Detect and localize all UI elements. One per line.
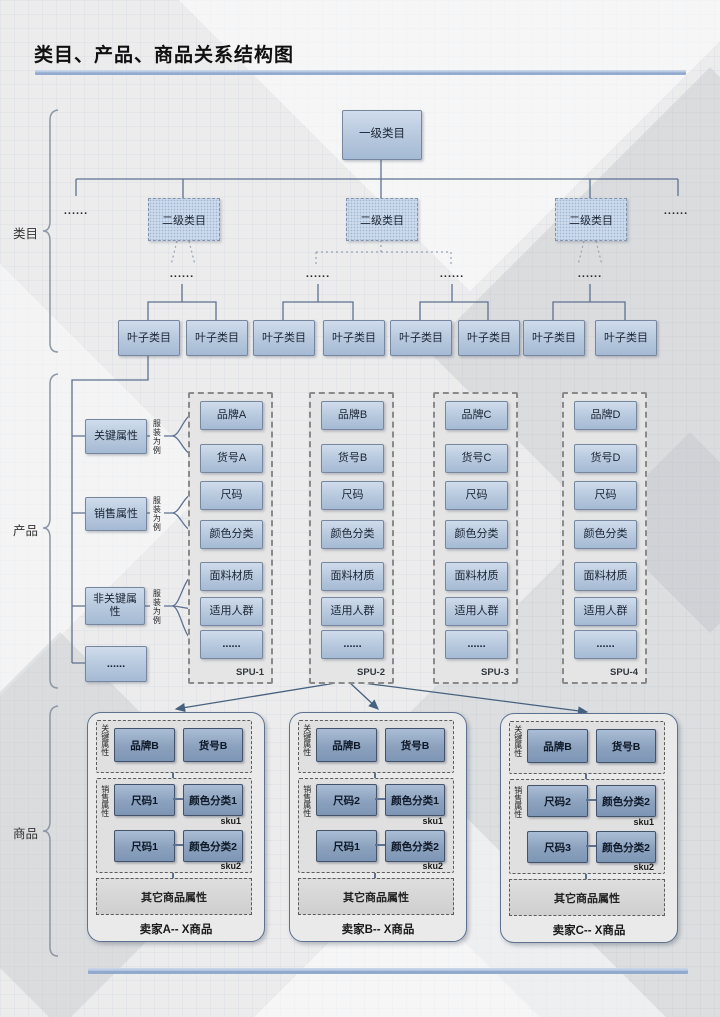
spu-attr-size: 尺码 bbox=[200, 481, 263, 510]
spu-attr-size: 尺码 bbox=[321, 481, 384, 510]
sku-tag: sku2 bbox=[398, 861, 443, 871]
spu-attr-audience: 适用人群 bbox=[574, 597, 637, 626]
sku-brand-box: 品牌B bbox=[316, 728, 377, 762]
node-leaf-category: 叶子类目 bbox=[118, 320, 180, 356]
node-level2-category: 二级类目 bbox=[346, 198, 418, 241]
spu-label: SPU-3 bbox=[481, 667, 509, 678]
node-sales-attributes: 销售属性 bbox=[85, 497, 147, 531]
node-leaf-category: 叶子类目 bbox=[595, 320, 657, 356]
sku-color-box: 颜色分类2 bbox=[596, 785, 656, 817]
other-attrs-box: 其它商品属性 bbox=[96, 878, 252, 915]
sku-size-box: 尺码3 bbox=[527, 831, 588, 863]
spu-label: SPU-1 bbox=[236, 667, 264, 678]
sku-size-box: 尺码1 bbox=[114, 830, 175, 862]
sku-color-box: 颜色分类2 bbox=[596, 831, 656, 863]
sku-size-box: 尺码1 bbox=[114, 784, 175, 816]
page-title: 类目、产品、商品关系结构图 bbox=[34, 40, 294, 67]
sku-itemno-box: 货号B bbox=[385, 728, 445, 762]
spu-attr-more: ...... bbox=[321, 630, 384, 659]
spu-attr-audience: 适用人群 bbox=[321, 597, 384, 626]
sku-pair-connector bbox=[586, 845, 596, 847]
sku-itemno-box: 货号B bbox=[183, 728, 243, 762]
sku-brand-box: 品牌B bbox=[114, 728, 175, 762]
spu-attr-brand: 品牌B bbox=[321, 401, 384, 430]
spu-attr-color: 颜色分类 bbox=[574, 520, 637, 549]
sku-size-box: 尺码2 bbox=[316, 784, 377, 816]
sku-tag: sku2 bbox=[609, 862, 654, 872]
sku-tag: sku1 bbox=[609, 817, 654, 827]
node-leaf-category: 叶子类目 bbox=[390, 320, 452, 356]
seller-card-a: 关键属性 品牌B 货号B 销售属性 尺码1 颜色分类1 sku1 尺码1 颜色分… bbox=[87, 712, 265, 942]
key-attr-vertical-label: 关键属性 bbox=[512, 725, 523, 757]
spu-attr-brand: 品牌A bbox=[200, 401, 263, 430]
spu-attr-fabric: 面料材质 bbox=[445, 562, 508, 591]
section-label-category: 类目 bbox=[13, 223, 38, 242]
spu-column-4: 品牌D 货号D 尺码 颜色分类 面料材质 适用人群 ...... SPU-4 bbox=[562, 392, 647, 684]
node-key-attributes: 关键属性 bbox=[85, 419, 147, 454]
spu-column-3: 品牌C 货号C 尺码 颜色分类 面料材质 适用人群 ...... SPU-3 bbox=[433, 392, 518, 684]
other-attrs-box: 其它商品属性 bbox=[298, 878, 454, 915]
ellipsis-more-categories: ...... bbox=[58, 205, 94, 217]
ellipsis-subtree: ...... bbox=[164, 268, 200, 280]
other-attrs-box: 其它商品属性 bbox=[509, 879, 665, 916]
sales-attr-vertical-label: 销售属性 bbox=[99, 785, 110, 817]
spu-attr-brand: 品牌D bbox=[574, 401, 637, 430]
sales-attr-vertical-label: 销售属性 bbox=[301, 785, 312, 817]
sku-pair-connector bbox=[173, 844, 183, 846]
key-attr-vertical-label: 关键属性 bbox=[301, 724, 312, 756]
node-leaf-category: 叶子类目 bbox=[458, 320, 520, 356]
node-root-category: 一级类目 bbox=[342, 110, 422, 160]
key-attr-vertical-label: 关键属性 bbox=[99, 724, 110, 756]
sku-tag: sku1 bbox=[398, 816, 443, 826]
sku-tag: sku1 bbox=[196, 816, 241, 826]
seller-card-c: 关键属性 品牌B 货号B 销售属性 尺码2 颜色分类2 sku1 尺码3 颜色分… bbox=[500, 713, 678, 943]
spu-attr-item-no: 货号C bbox=[445, 444, 508, 473]
sku-color-box: 颜色分类1 bbox=[183, 784, 243, 816]
diagram-canvas: 类目、产品、商品关系结构图 类目 产品 商品 一级类目 二级类目 二级类目 二级… bbox=[0, 0, 720, 1017]
footer-divider bbox=[88, 968, 688, 974]
ellipsis-more-categories: ...... bbox=[658, 205, 694, 217]
node-level2-category: 二级类目 bbox=[555, 198, 627, 241]
sku-pair-connector bbox=[173, 798, 183, 800]
seller-name: 卖家C-- X商品 bbox=[501, 922, 677, 938]
sku-pair-connector bbox=[375, 844, 385, 846]
sku-pair-connector bbox=[586, 799, 596, 801]
sku-size-box: 尺码1 bbox=[316, 830, 377, 862]
note-clothing-example: 服装为例 bbox=[150, 410, 162, 464]
node-leaf-category: 叶子类目 bbox=[186, 320, 248, 356]
node-leaf-category: 叶子类目 bbox=[253, 320, 315, 356]
ellipsis-subtree: ...... bbox=[300, 268, 336, 280]
spu-attr-fabric: 面料材质 bbox=[321, 562, 384, 591]
sku-color-box: 颜色分类1 bbox=[385, 784, 445, 816]
section-label-product: 产品 bbox=[13, 520, 38, 539]
spu-attr-brand: 品牌C bbox=[445, 401, 508, 430]
sku-color-box: 颜色分类2 bbox=[385, 830, 445, 862]
spu-attr-fabric: 面料材质 bbox=[200, 562, 263, 591]
seller-name: 卖家A-- X商品 bbox=[88, 921, 264, 937]
sku-brand-box: 品牌B bbox=[527, 729, 588, 763]
spu-column-2: 品牌B 货号B 尺码 颜色分类 面料材质 适用人群 ...... SPU-2 bbox=[309, 392, 394, 684]
spu-attr-fabric: 面料材质 bbox=[574, 562, 637, 591]
spu-attr-audience: 适用人群 bbox=[200, 597, 263, 626]
sku-itemno-box: 货号B bbox=[596, 729, 656, 763]
spu-attr-size: 尺码 bbox=[574, 481, 637, 510]
spu-attr-color: 颜色分类 bbox=[321, 520, 384, 549]
sales-attr-vertical-label: 销售属性 bbox=[512, 786, 523, 818]
node-nonkey-attributes: 非关键属性 bbox=[85, 587, 145, 625]
ellipsis-subtree: ...... bbox=[434, 268, 470, 280]
spu-attr-item-no: 货号B bbox=[321, 444, 384, 473]
sku-size-box: 尺码2 bbox=[527, 785, 588, 817]
spu-label: SPU-4 bbox=[610, 667, 638, 678]
node-leaf-category: 叶子类目 bbox=[323, 320, 385, 356]
node-more-attributes: ...... bbox=[85, 646, 147, 682]
node-level2-category: 二级类目 bbox=[148, 198, 220, 241]
spu-attr-more: ...... bbox=[574, 630, 637, 659]
sku-tag: sku2 bbox=[196, 861, 241, 871]
spu-column-1: 品牌A 货号A 尺码 颜色分类 面料材质 适用人群 ...... SPU-1 bbox=[188, 392, 273, 684]
note-clothing-example: 服装为例 bbox=[150, 580, 162, 634]
spu-attr-more: ...... bbox=[445, 630, 508, 659]
sku-color-box: 颜色分类2 bbox=[183, 830, 243, 862]
seller-name: 卖家B-- X商品 bbox=[290, 921, 466, 937]
spu-label: SPU-2 bbox=[357, 667, 385, 678]
spu-attr-color: 颜色分类 bbox=[200, 520, 263, 549]
spu-attr-size: 尺码 bbox=[445, 481, 508, 510]
seller-card-b: 关键属性 品牌B 货号B 销售属性 尺码2 颜色分类1 sku1 尺码1 颜色分… bbox=[289, 712, 467, 942]
section-label-goods: 商品 bbox=[13, 823, 38, 842]
node-leaf-category: 叶子类目 bbox=[523, 320, 585, 356]
spu-attr-color: 颜色分类 bbox=[445, 520, 508, 549]
spu-attr-item-no: 货号A bbox=[200, 444, 263, 473]
title-divider bbox=[35, 70, 686, 75]
spu-attr-more: ...... bbox=[200, 630, 263, 659]
note-clothing-example: 服装为例 bbox=[150, 487, 162, 541]
ellipsis-subtree: ...... bbox=[572, 268, 608, 280]
spu-attr-audience: 适用人群 bbox=[445, 597, 508, 626]
spu-attr-item-no: 货号D bbox=[574, 444, 637, 473]
sku-pair-connector bbox=[375, 798, 385, 800]
